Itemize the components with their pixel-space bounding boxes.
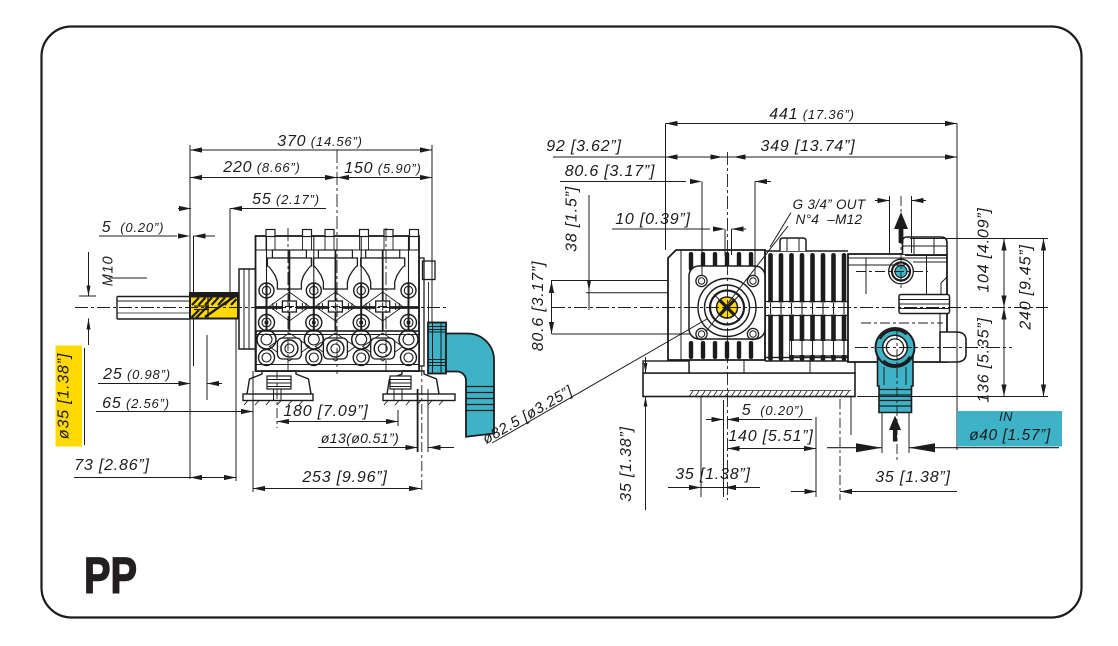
svg-text:IN: IN (999, 409, 1013, 424)
svg-text:180 [7.09”]: 180 [7.09”] (283, 403, 368, 420)
svg-text:136 [5.35”]: 136 [5.35”] (976, 317, 993, 402)
svg-text:240 [9.45”]: 240 [9.45”] (1018, 244, 1035, 330)
svg-text:5 (0.20”): 5 (0.20”) (742, 402, 804, 419)
svg-text:35 [1.38”]: 35 [1.38”] (618, 426, 635, 502)
svg-text:25 (0.98”): 25 (0.98”) (102, 366, 171, 383)
svg-text:55 (2.17”): 55 (2.17”) (252, 191, 320, 208)
svg-text:92 [3.62”]: 92 [3.62”] (546, 138, 622, 155)
svg-text:ø40 [1.57”]: ø40 [1.57”] (969, 427, 1051, 444)
svg-text:220 (8.66”): 220 (8.66”) (222, 159, 300, 176)
svg-text:104 [4.09”]: 104 [4.09”] (976, 207, 993, 292)
svg-text:G 3/4” OUT: G 3/4” OUT (793, 197, 867, 212)
svg-text:140 [5.51”]: 140 [5.51”] (728, 428, 813, 445)
svg-text:150 (5.90”): 150 (5.90”) (344, 160, 421, 177)
svg-text:N°4 –M12: N°4 –M12 (796, 212, 863, 227)
svg-text:370 (14.56”): 370 (14.56”) (277, 133, 362, 150)
svg-text:38 [1.5”]: 38 [1.5”] (564, 186, 581, 252)
svg-text:65 (2.56”): 65 (2.56”) (102, 395, 170, 412)
svg-text:PP: PP (84, 547, 137, 604)
svg-text:349 [13.74”]: 349 [13.74”] (761, 138, 856, 155)
svg-text:5 (0.20”): 5 (0.20”) (102, 219, 164, 236)
svg-text:10 [0.39”]: 10 [0.39”] (615, 211, 691, 228)
svg-text:253 [9.96”]: 253 [9.96”] (301, 469, 387, 486)
svg-text:M10: M10 (101, 256, 117, 287)
svg-text:35 [1.38”]: 35 [1.38”] (875, 469, 951, 486)
svg-text:80.6 [3.17”]: 80.6 [3.17”] (565, 163, 656, 180)
svg-text:ø35 [1.38”]: ø35 [1.38”] (56, 353, 73, 439)
svg-text:73 [2.86”]: 73 [2.86”] (74, 457, 150, 474)
svg-text:441 (17.36”): 441 (17.36”) (769, 106, 854, 123)
svg-text:35 [1.38”]: 35 [1.38”] (675, 466, 751, 483)
svg-text:ø13(ø0.51”): ø13(ø0.51”) (321, 430, 399, 446)
svg-text:80.6 [3.17”]: 80.6 [3.17”] (530, 261, 547, 352)
